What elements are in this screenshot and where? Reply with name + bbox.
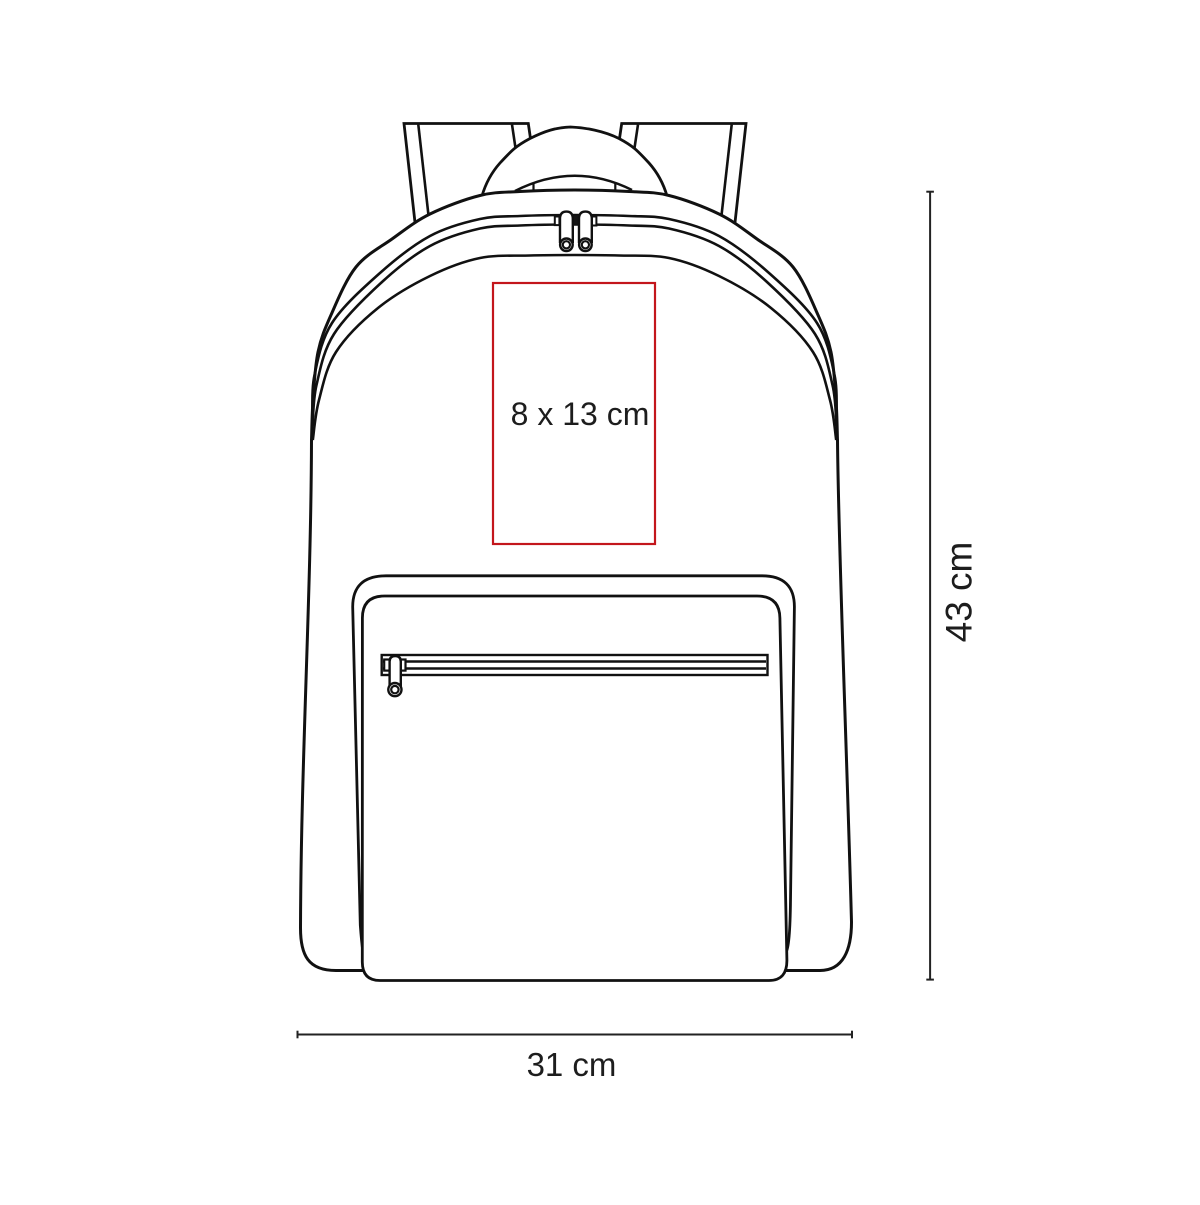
svg-text:8 x 13 cm: 8 x 13 cm (511, 396, 650, 432)
svg-text:31 cm: 31 cm (527, 1046, 617, 1083)
svg-text:43 cm: 43 cm (939, 542, 980, 643)
